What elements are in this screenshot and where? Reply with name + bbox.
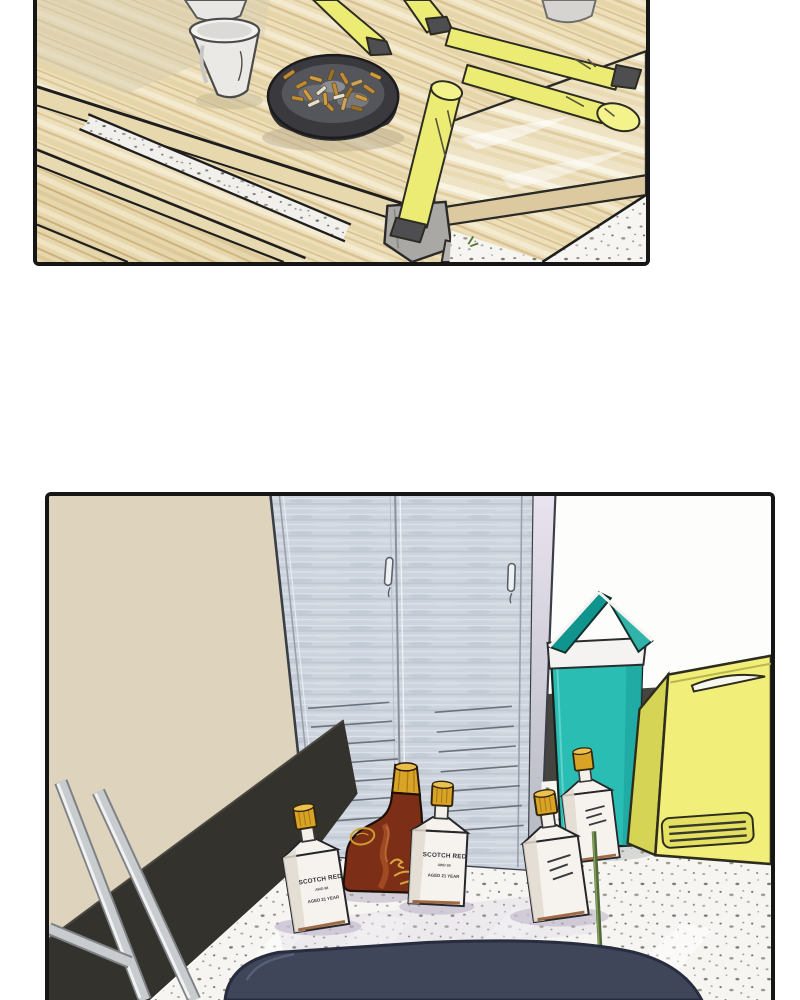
comic-page: SCOTCH RED AWD 88 AGED 21 YEAR — [0, 0, 800, 1000]
box-vent-slots — [661, 812, 754, 848]
stick-dark-tip — [611, 65, 641, 89]
ashtray-with-cigarette-butts — [268, 55, 398, 141]
panel-table-scene — [33, 0, 650, 266]
bottle-series-text: AWD 88 — [437, 863, 450, 868]
panel-locker-scene: SCOTCH RED AWD 88 AGED 21 YEAR — [45, 492, 775, 1000]
